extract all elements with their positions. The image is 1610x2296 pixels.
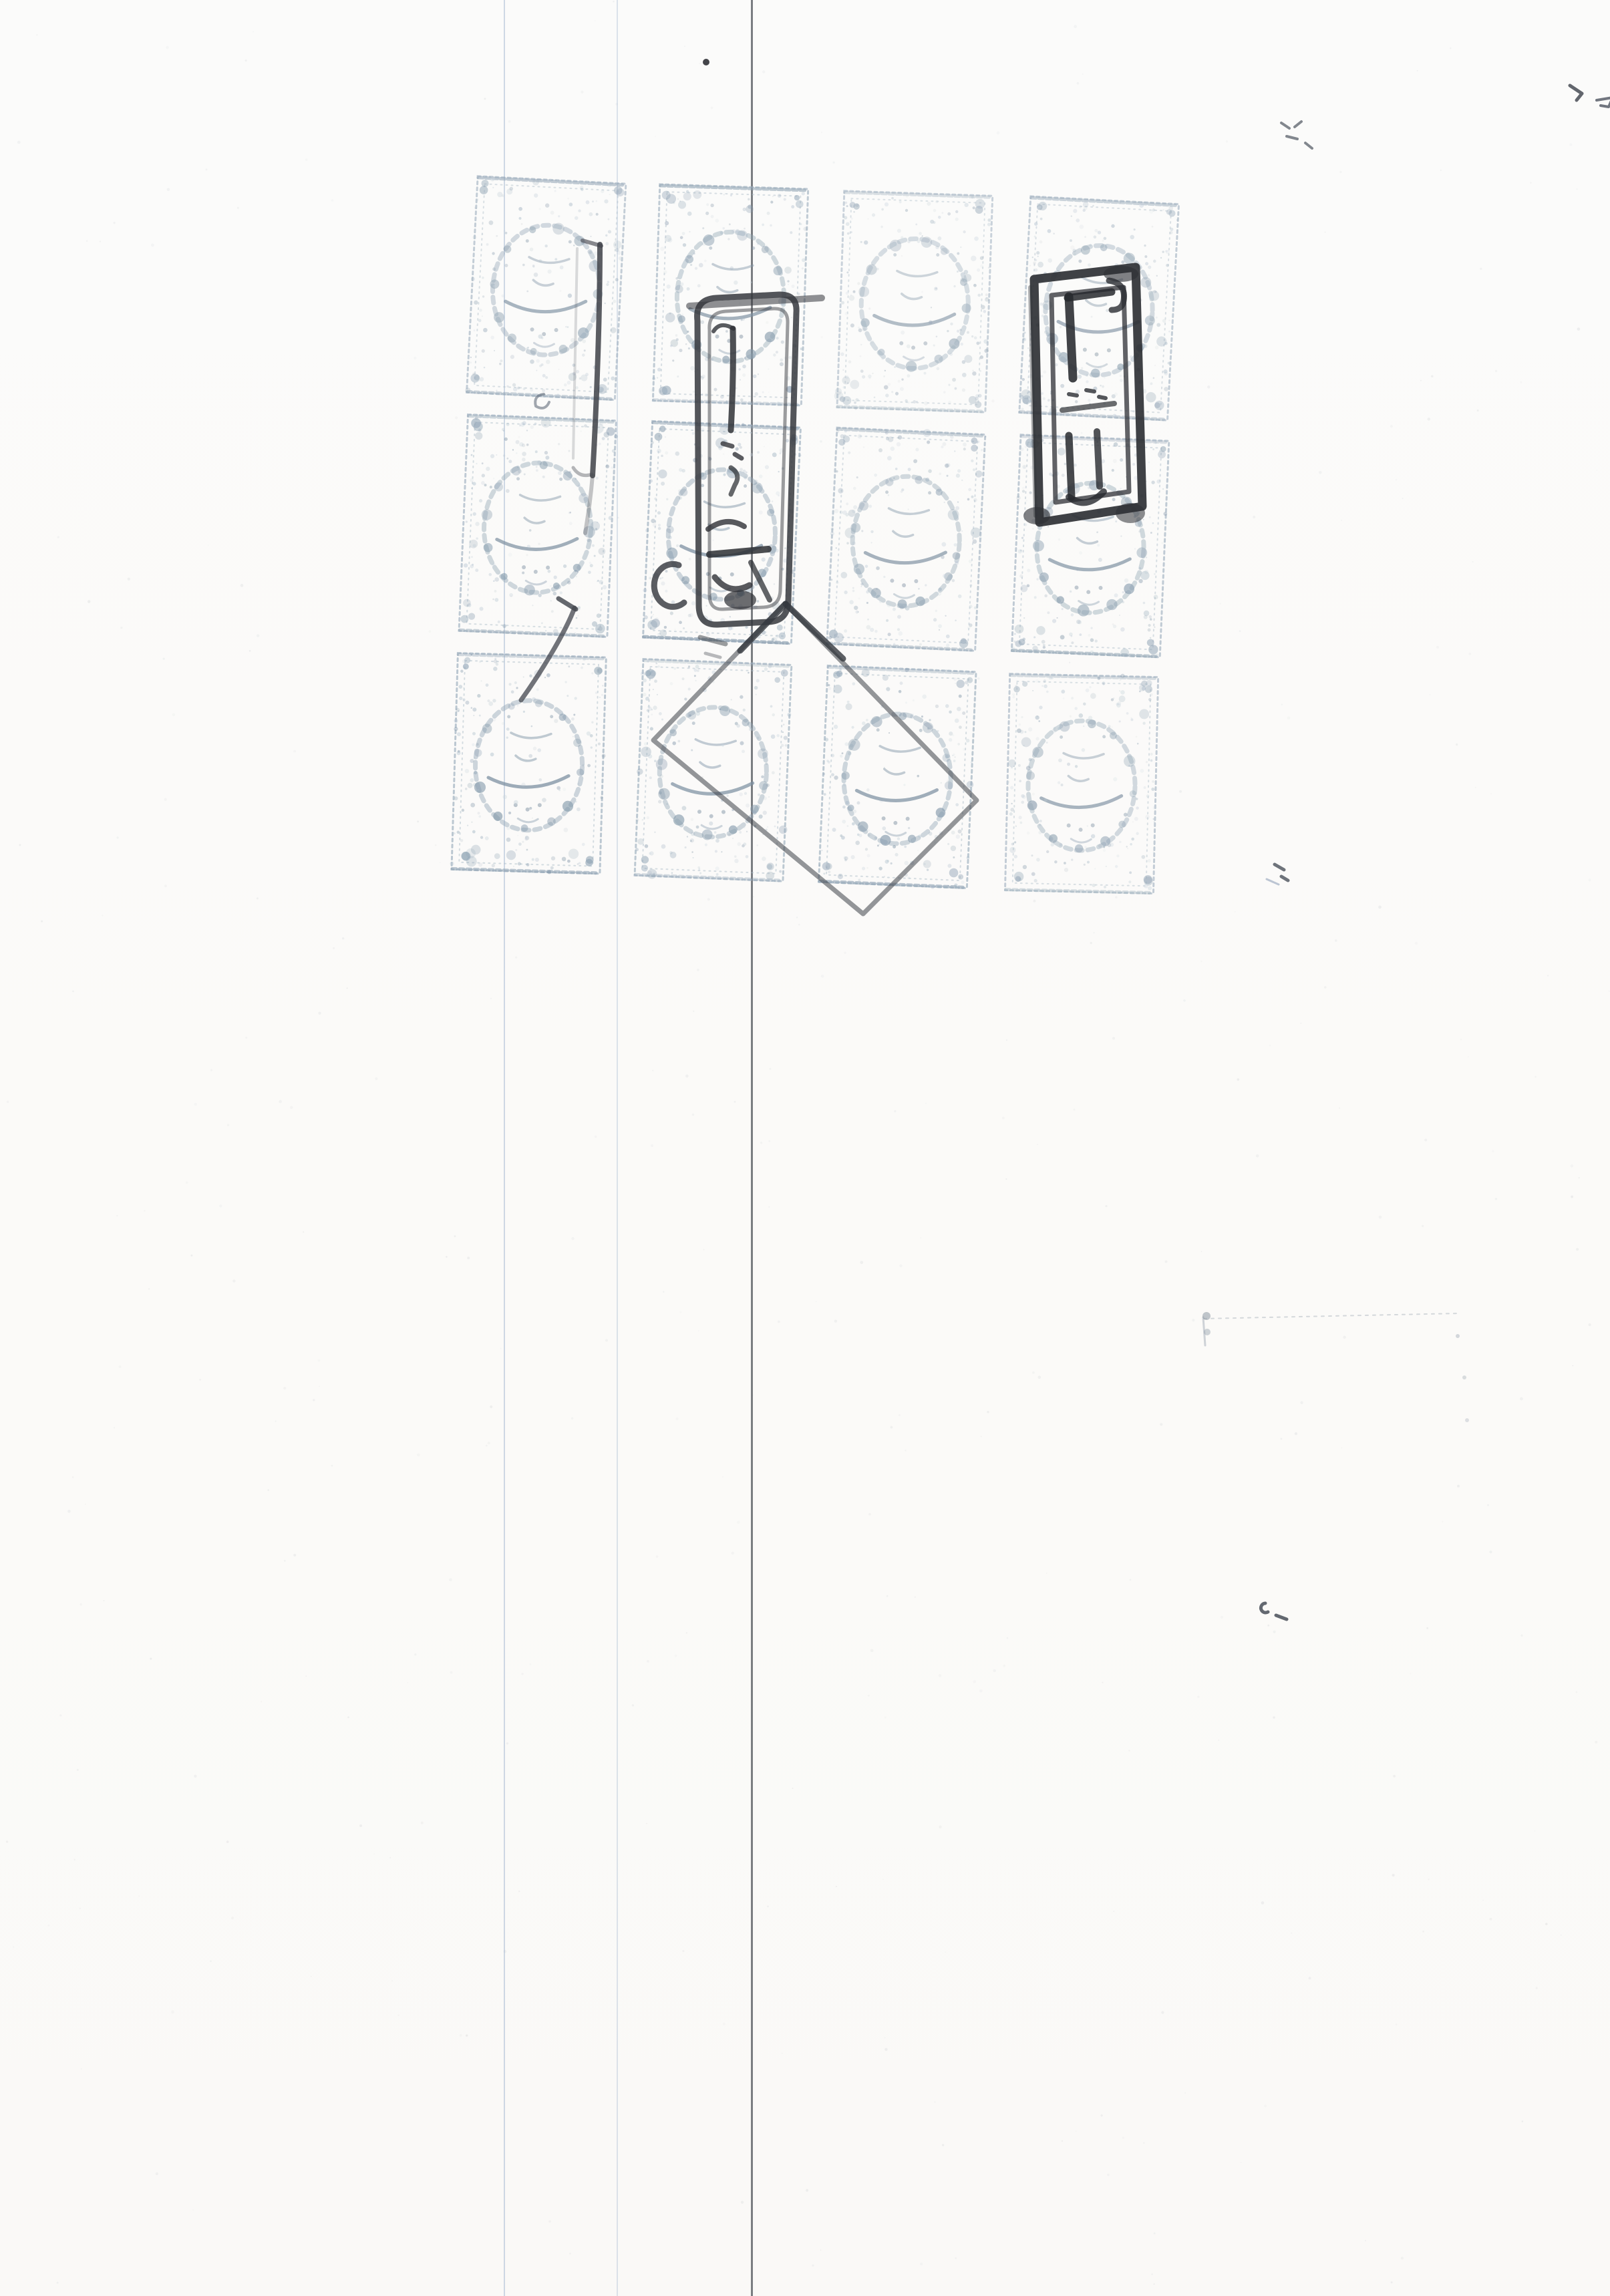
col4-handstamp-inner bbox=[1052, 287, 1129, 502]
speck-low-right bbox=[1261, 1603, 1287, 1619]
speck-mid-right bbox=[1275, 864, 1288, 880]
faint-hline bbox=[1204, 1313, 1460, 1319]
faint-hline-blob1 bbox=[1202, 1312, 1211, 1320]
ink-dot-top bbox=[703, 59, 709, 65]
col1-handstamp-bottom bbox=[573, 468, 592, 476]
pen-squiggle-small bbox=[535, 394, 549, 408]
scanned-page bbox=[0, 0, 1610, 2296]
faint-trail-1 bbox=[1456, 1334, 1460, 1338]
col4-glyph-ya1 bbox=[1069, 436, 1072, 497]
col4-smudge-br bbox=[1116, 503, 1145, 523]
col2-glyph-mid bbox=[731, 468, 738, 494]
col2-handstamp-inner bbox=[709, 309, 788, 609]
speck-cluster-right bbox=[1281, 122, 1312, 148]
ink-marks-overlay bbox=[0, 0, 1610, 2296]
col1-handstamp-right-edge bbox=[593, 244, 600, 476]
speck-top-right-2 bbox=[1597, 98, 1610, 107]
pen-box-apex-left bbox=[740, 604, 786, 651]
faint-hline-blob2 bbox=[1204, 1329, 1211, 1335]
col1-handstamp-left-edge bbox=[573, 249, 577, 458]
col2-crescent bbox=[654, 564, 684, 607]
col4-smudge-top bbox=[1104, 266, 1138, 282]
col2-glyph-dots bbox=[723, 444, 742, 458]
col2-below-dash2 bbox=[705, 653, 720, 657]
col2-glyph-b3 bbox=[715, 577, 750, 589]
pen-box-outline bbox=[653, 603, 977, 914]
col2-glyph-b4 bbox=[724, 591, 756, 609]
col4-glyph-ya2 bbox=[1097, 432, 1100, 486]
col2-glyph-b5 bbox=[751, 562, 770, 600]
faint-trail-3 bbox=[1465, 1418, 1469, 1422]
speck-top-right-1 bbox=[1570, 86, 1582, 100]
faint-trail-2 bbox=[1462, 1375, 1466, 1379]
col4-smudge-bl bbox=[1023, 507, 1050, 524]
speck-mid-right-tail bbox=[1267, 879, 1279, 884]
col2-below-dash1 bbox=[700, 637, 726, 644]
col4-glyph-gamma-v bbox=[1069, 297, 1073, 378]
pen-box-apex-right bbox=[786, 604, 843, 659]
pen-slash bbox=[521, 608, 575, 700]
col4-glyph-dots bbox=[1069, 390, 1106, 398]
col2-glyph-alef bbox=[731, 329, 733, 430]
col2-glyph-b1 bbox=[708, 522, 744, 529]
col4-glyph-bar bbox=[1062, 403, 1114, 410]
col2-glyph-b2 bbox=[709, 549, 768, 554]
col1-handstamp-right-fade bbox=[585, 476, 593, 533]
